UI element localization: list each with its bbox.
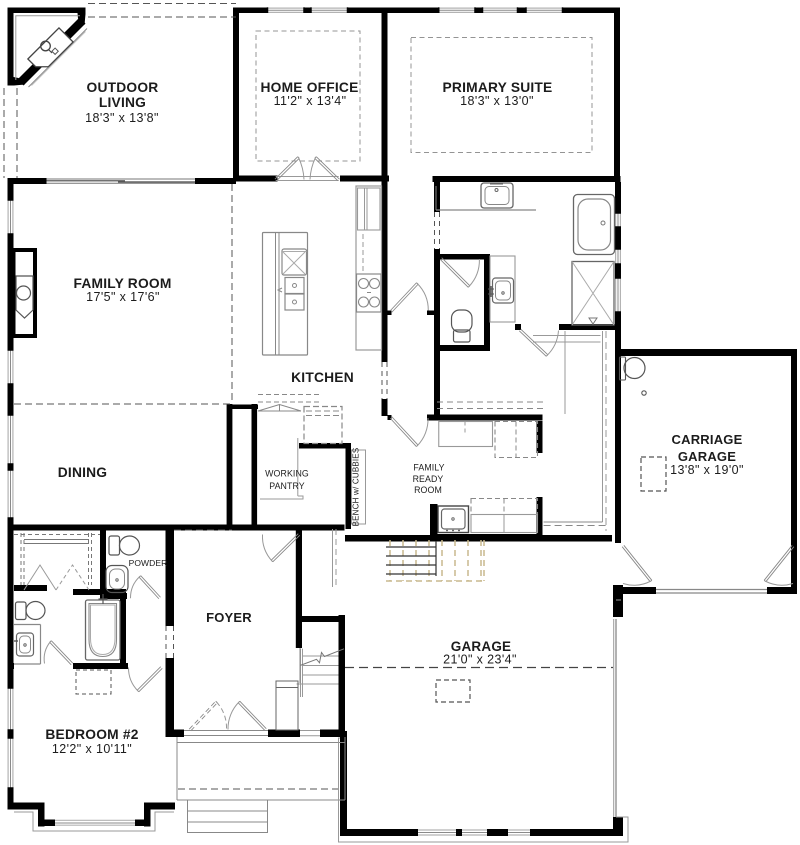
svg-text:FAMILY: FAMILY [413, 463, 444, 473]
svg-text:17'5" x 17'6": 17'5" x 17'6" [86, 290, 160, 304]
svg-text:HOME OFFICE: HOME OFFICE [260, 80, 358, 95]
svg-text:PRIMARY SUITE: PRIMARY SUITE [443, 80, 553, 95]
svg-text:WORKING: WORKING [265, 469, 309, 479]
svg-text:FAMILY ROOM: FAMILY ROOM [73, 276, 171, 291]
svg-text:POWDER: POWDER [129, 558, 168, 568]
svg-text:FOYER: FOYER [206, 610, 252, 625]
svg-text:11'2" x 13'4": 11'2" x 13'4" [274, 94, 347, 108]
svg-text:GARAGE: GARAGE [678, 449, 736, 464]
svg-text:ROOM: ROOM [414, 485, 442, 495]
svg-text:LIVING: LIVING [99, 95, 146, 110]
svg-text:BENCH w/ CUBBIES: BENCH w/ CUBBIES [352, 448, 361, 527]
svg-text:OUTDOOR: OUTDOOR [87, 80, 159, 95]
svg-text:READY: READY [413, 474, 444, 484]
svg-text:DINING: DINING [58, 465, 108, 480]
svg-text:CARRIAGE: CARRIAGE [672, 432, 743, 447]
svg-text:BEDROOM #2: BEDROOM #2 [45, 727, 138, 742]
svg-text:18'3" x 13'0": 18'3" x 13'0" [460, 94, 534, 108]
svg-text:PANTRY: PANTRY [269, 481, 305, 491]
svg-text:13'8" x 19'0": 13'8" x 19'0" [670, 463, 744, 477]
svg-text:12'2" x 10'11": 12'2" x 10'11" [52, 742, 132, 756]
svg-text:KITCHEN: KITCHEN [291, 370, 354, 385]
svg-text:21'0" x 23'4": 21'0" x 23'4" [443, 653, 517, 667]
svg-text:18'3" x 13'8": 18'3" x 13'8" [85, 111, 159, 125]
